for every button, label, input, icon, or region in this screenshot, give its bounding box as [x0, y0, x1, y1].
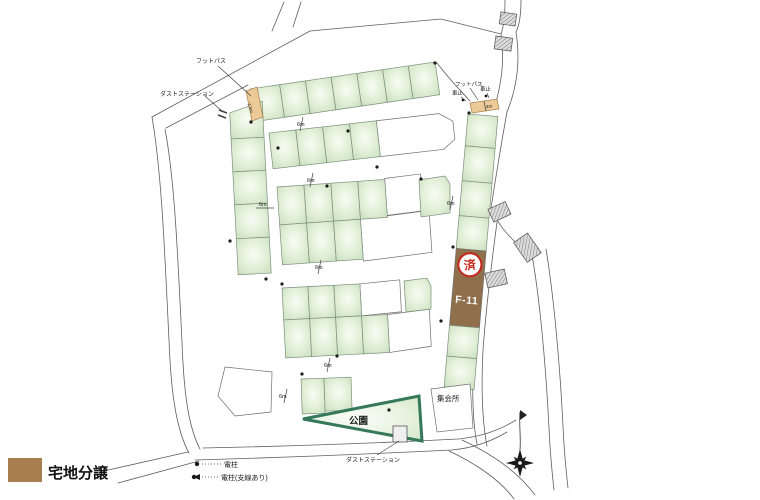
- lot[interactable]: [331, 73, 361, 109]
- legend-swatch: [8, 458, 42, 482]
- lot[interactable]: [233, 170, 268, 205]
- pole-legend-label-1: 電柱: [224, 460, 238, 469]
- road-dimension: 6m: [259, 202, 267, 208]
- lot[interactable]: [358, 179, 388, 219]
- lot[interactable]: [376, 112, 456, 156]
- utility-pole-dot: [433, 61, 436, 64]
- lot[interactable]: [284, 319, 312, 358]
- lot[interactable]: [269, 130, 300, 169]
- pole-legend: 電柱 電柱(支線あり): [192, 460, 268, 482]
- lot[interactable]: [307, 221, 337, 263]
- dust-station-label-top: ダストステーション: [160, 90, 214, 98]
- lot-block-middle: [277, 174, 432, 267]
- lot[interactable]: [456, 216, 489, 251]
- site-plan-page: 済 F-11: [0, 0, 760, 500]
- utility-pole-dot: [419, 177, 422, 180]
- lot-block-right-column: 済 F-11: [444, 114, 498, 390]
- meeting-hall-lot[interactable]: [431, 384, 473, 432]
- pole-legend-label-2: 電柱(支線あり): [221, 473, 268, 482]
- lot-f11-label: F-11: [455, 294, 479, 308]
- lot[interactable]: [360, 280, 402, 316]
- utility-pole-dot: [335, 354, 338, 357]
- lot[interactable]: [301, 378, 325, 414]
- building-hatch: [499, 12, 517, 26]
- lot[interactable]: [419, 176, 450, 217]
- building-hatch: [494, 36, 513, 51]
- lot[interactable]: [310, 317, 338, 356]
- lot-block-row2: [269, 112, 456, 169]
- lot[interactable]: [349, 121, 380, 160]
- lot[interactable]: [324, 377, 352, 411]
- lot[interactable]: [447, 325, 480, 358]
- footpath-label-left: フットパス: [196, 58, 226, 65]
- compass-icon: [506, 410, 534, 477]
- lot-block-top-row: [250, 62, 440, 122]
- lot[interactable]: [331, 181, 361, 221]
- lot[interactable]: [304, 183, 334, 223]
- lot[interactable]: [408, 62, 439, 99]
- utility-pole-dot: [375, 165, 378, 168]
- lot[interactable]: [235, 203, 270, 239]
- lot[interactable]: [296, 127, 327, 166]
- lot-block-bottom: [301, 377, 352, 414]
- utility-pole-dot: [280, 282, 283, 285]
- utility-pole-dot: [451, 245, 454, 248]
- road-dimension: 6m: [297, 122, 305, 128]
- utility-pole-dot: [467, 111, 470, 114]
- road-dimension: 6m: [447, 201, 455, 207]
- lot[interactable]: [236, 237, 271, 275]
- building-hatch: [514, 233, 542, 262]
- lot[interactable]: [334, 219, 364, 261]
- car-stop-label-1: 車止: [452, 89, 464, 97]
- lot[interactable]: [277, 185, 307, 225]
- legend-area: 宅地分譲: [8, 458, 109, 482]
- lot[interactable]: [459, 181, 492, 218]
- lot[interactable]: [231, 137, 266, 172]
- utility-pole-dot: [325, 184, 328, 187]
- building-hatch: [485, 269, 508, 288]
- lot[interactable]: [280, 81, 310, 117]
- lot[interactable]: [336, 316, 364, 355]
- road-dimension: 4m: [486, 103, 493, 109]
- lot[interactable]: [465, 114, 498, 148]
- lot[interactable]: [362, 315, 390, 354]
- utility-pole-dot: [300, 372, 303, 375]
- site-map: 済 F-11: [0, 0, 760, 500]
- pole-legend-dot: [195, 462, 199, 466]
- utility-pole-dot: [228, 239, 231, 242]
- lot[interactable]: [280, 223, 310, 265]
- lot[interactable]: [383, 66, 413, 102]
- lot[interactable]: [305, 77, 335, 113]
- footpath-label-right: フットパス: [455, 81, 483, 88]
- utility-pole-dot: [249, 120, 252, 123]
- car-stop-label-2: 車止: [480, 85, 492, 93]
- lot[interactable]: [218, 367, 272, 416]
- road-dimension: 6m: [324, 363, 332, 369]
- lot[interactable]: [357, 70, 387, 106]
- lot[interactable]: [462, 146, 495, 183]
- lot[interactable]: [404, 278, 431, 312]
- road-dimension: 6m: [307, 178, 315, 184]
- road-dimension: 6m: [315, 265, 323, 271]
- utility-pole-dot: [485, 95, 488, 98]
- utility-pole-dot: [276, 146, 279, 149]
- road-dimension: 6m: [279, 394, 287, 400]
- lot[interactable]: [308, 285, 336, 318]
- lot[interactable]: [334, 284, 362, 317]
- park-label: 公園: [349, 416, 368, 427]
- lot[interactable]: [387, 309, 431, 352]
- lot[interactable]: [444, 356, 477, 389]
- lot[interactable]: [323, 124, 354, 163]
- dust-station-label-bottom: ダストステーション: [346, 456, 400, 464]
- utility-pole-dot: [346, 129, 349, 132]
- utility-pole-dot: [264, 277, 267, 280]
- footpath-strip-right: [470, 99, 499, 113]
- dust-station-box: [393, 426, 407, 442]
- utility-pole-dot: [439, 319, 442, 322]
- lot-block-left-column: [229, 101, 271, 274]
- lot[interactable]: [282, 287, 310, 320]
- utility-pole-dot: [387, 408, 390, 411]
- legend-title: 宅地分譲: [48, 464, 109, 482]
- lot[interactable]: [385, 174, 424, 215]
- meeting-hall-label: 集会所: [437, 393, 460, 403]
